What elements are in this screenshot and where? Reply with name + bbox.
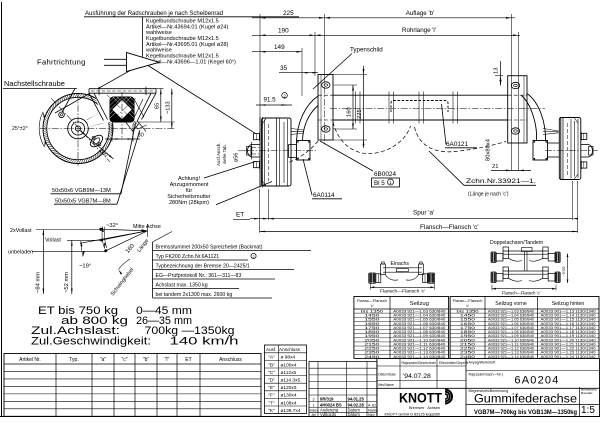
svg-text:225: 225 xyxy=(357,109,363,119)
svg-text:225: 225 xyxy=(283,10,294,17)
svg-text:Artikel Nr.: Artikel Nr. xyxy=(19,357,41,363)
svg-text:190: 190 xyxy=(278,28,289,35)
svg-text:9R/319: 9R/319 xyxy=(320,397,334,402)
svg-text:ø130x4: ø130x4 xyxy=(281,393,297,399)
svg-text:~84 mm: ~84 mm xyxy=(36,272,42,293)
svg-text:Bremsen · Achsen: Bremsen · Achsen xyxy=(409,406,440,410)
svg-text:Fahrtrichtung: Fahrtrichtung xyxy=(37,58,86,67)
svg-text:~133: ~133 xyxy=(165,101,171,114)
svg-text:21: 21 xyxy=(492,164,498,170)
svg-text:1:5: 1:5 xyxy=(581,405,595,416)
svg-text:149: 149 xyxy=(274,44,285,51)
svg-text:VGB7M—700kg bis VGB13M—1350kg: VGB7M—700kg bis VGB13M—1350kg xyxy=(474,409,577,416)
svg-text:KNOTT: KNOTT xyxy=(399,391,443,406)
svg-text:13: 13 xyxy=(494,68,500,74)
svg-text:Ellenőrizte/Geprüft: Ellenőrizte/Geprüft xyxy=(439,361,468,365)
svg-text:Typ FK200 Zchn.Nr.6A1121: Typ FK200 Zchn.Nr.6A1121 xyxy=(156,254,220,260)
svg-text:6A0204: 6A0204 xyxy=(514,375,559,387)
svg-text:"a": "a" xyxy=(100,357,107,363)
svg-text:A.Sz.: A.Sz. xyxy=(368,403,377,407)
svg-text:Vollast: Vollast xyxy=(45,238,61,244)
svg-text:"K": "K" xyxy=(268,408,275,414)
svg-text:"A": "A" xyxy=(268,355,275,361)
svg-text:ø114.3x5: ø114.3x5 xyxy=(281,378,301,384)
svg-text:"F": "F" xyxy=(268,393,275,399)
svg-text:94.01.25: 94.01.25 xyxy=(348,397,365,402)
svg-text:"E": "E" xyxy=(268,385,275,391)
svg-text:Masstab:: Masstab: xyxy=(581,391,593,395)
svg-text:25°±2°: 25°±2° xyxy=(12,126,28,132)
svg-text:ET: ET xyxy=(236,212,244,219)
svg-text:Flansc—Flansch: Flansc—Flansch xyxy=(453,298,483,303)
svg-text:ø112x5: ø112x5 xyxy=(281,370,297,376)
svg-text:ET: ET xyxy=(185,357,191,363)
svg-text:Zchn.Nr.33921—1.: Zchn.Nr.33921—1. xyxy=(466,178,536,185)
svg-text:Anyag/Werkstoff:: Anyag/Werkstoff: xyxy=(469,361,496,365)
svg-text:ø139.7x4: ø139.7x4 xyxy=(281,408,301,414)
svg-text:Seilzug hinten: Seilzug hinten xyxy=(552,301,585,307)
svg-text:unbeladen: unbeladen xyxy=(8,250,33,256)
svg-text:'c': 'c' xyxy=(466,303,470,308)
svg-text:6A0114: 6A0114 xyxy=(313,192,335,199)
svg-text:Einachs: Einachs xyxy=(391,261,410,267)
svg-text:Seilzug vorne: Seilzug vorne xyxy=(495,301,527,307)
svg-text:Rajzszám/Gezeichnet: Rajzszám/Gezeichnet xyxy=(402,361,436,365)
svg-text:6B0024: 6B0024 xyxy=(374,171,396,178)
svg-text:2: 2 xyxy=(312,398,314,402)
svg-text:"C": "C" xyxy=(268,370,275,376)
svg-text:Mitte Achse: Mitte Achse xyxy=(133,224,161,230)
svg-text:ø 98x4: ø 98x4 xyxy=(281,355,296,361)
svg-text:ø100x4: ø100x4 xyxy=(281,362,297,368)
svg-text:50x50x5 VGB7M—8M: 50x50x5 VGB7M—8M xyxy=(55,199,111,205)
svg-text:wahlweise: wahlweise xyxy=(145,47,172,53)
svg-text:"T": "T" xyxy=(268,400,275,406)
svg-text:KNOTT GmbH D 83125 Eggst: KNOTT GmbH D 83125 Eggstätt xyxy=(385,413,441,417)
svg-text:Seilzug: Seilzug xyxy=(410,301,429,307)
svg-text:'94.07.28: '94.07.28 xyxy=(403,373,431,380)
svg-text:160: 160 xyxy=(347,107,353,117)
svg-text:Dátum/Date: Dátum/Date xyxy=(378,373,396,377)
svg-text:wahlweise: wahlweise xyxy=(145,30,172,36)
svg-text:Ausf.Ansch.: Ausf.Ansch. xyxy=(216,143,221,166)
svg-text:ø56: ø56 xyxy=(234,153,240,162)
svg-text:bei tandem 2x1300 max. 2600 kg: bei tandem 2x1300 max. 2600 kg xyxy=(156,292,233,298)
svg-text:Rajzszám/Sach—Nr.): Rajzszám/Sach—Nr.) xyxy=(469,373,503,377)
svg-text:"l": "l" xyxy=(165,357,170,363)
svg-text:~32°: ~32° xyxy=(106,223,118,229)
svg-text:Dátum: Dátum xyxy=(348,412,361,417)
svg-text:Flansch—Flansch 'c': Flansch—Flansch 'c' xyxy=(502,290,541,295)
svg-text:Bl 5: Bl 5 xyxy=(374,180,385,187)
svg-text:1: 1 xyxy=(312,403,314,407)
svg-text:91.5: 91.5 xyxy=(264,97,277,104)
svg-text:~19°: ~19° xyxy=(79,264,91,270)
svg-text:Ausführung der Radschrauben je: Ausführung der Radschrauben je nach Sche… xyxy=(85,11,223,17)
svg-text:Typbezeichnung der Bremse 20—2: Typbezeichnung der Bremse 20—2425/1 xyxy=(156,264,250,270)
svg-text:65: 65 xyxy=(154,103,160,109)
svg-text:80x80x4: 80x80x4 xyxy=(486,138,492,161)
svg-text:ø108x4: ø108x4 xyxy=(281,400,297,406)
svg-text:Index: Index xyxy=(309,409,318,413)
svg-text:Anschluss: Anschluss xyxy=(279,347,301,352)
svg-text:35: 35 xyxy=(280,65,288,72)
svg-text:Vdltozds: Vdltozds xyxy=(320,412,336,417)
svg-text:Flansch—Flansch 'c': Flansch—Flansch 'c' xyxy=(380,289,425,294)
svg-text:Nachstellschraube: Nachstellschraube xyxy=(4,79,65,88)
svg-text:Typenschild: Typenschild xyxy=(350,47,383,54)
svg-text:"B": "B" xyxy=(268,362,275,368)
svg-text:Flansch—Flansch 'c': Flansch—Flansch 'c' xyxy=(420,224,479,231)
svg-text:ø120x5: ø120x5 xyxy=(281,385,297,391)
svg-text:Gummifederachse: Gummifederachse xyxy=(474,392,577,406)
svg-text:Auflage 'b': Auflage 'b' xyxy=(406,10,435,17)
svg-text:Rohrlange 'l': Rohrlange 'l' xyxy=(402,27,436,34)
svg-text:280Nm (28kpm): 280Nm (28kpm) xyxy=(169,200,209,206)
svg-text:'c': 'c' xyxy=(370,303,374,308)
svg-text:"D": "D" xyxy=(268,378,275,384)
svg-text:siehe Tab.: siehe Tab. xyxy=(222,144,227,164)
svg-text:50x50x6 VGB9M—13M: 50x50x6 VGB9M—13M xyxy=(52,188,111,194)
svg-text:~52 mm: ~52 mm xyxy=(64,272,70,293)
svg-text:6A0121: 6A0121 xyxy=(446,141,468,148)
svg-text:~0°/05: ~0°/05 xyxy=(562,266,566,276)
svg-text:Anschluss: Anschluss xyxy=(219,357,242,363)
svg-text:Doppelachsen/Tandem: Doppelachsen/Tandem xyxy=(490,240,543,246)
svg-text:Flansc—Flansch: Flansc—Flansch xyxy=(357,298,387,303)
svg-text:Jel: Jel xyxy=(311,413,316,417)
svg-text:Ausf.: Ausf. xyxy=(266,347,276,352)
svg-text:EG—Prüfprotokoll Nr.: 361—311—: EG—Prüfprotokoll Nr.: 361—311—83 xyxy=(156,273,242,279)
svg-text:Zul.Geschwindigkeit:: Zul.Geschwindigkeit: xyxy=(31,336,151,348)
svg-text:Bremsstummel 200x50 Spreizhebe: Bremsstummel 200x50 Spreizhebel (Backmat… xyxy=(156,245,263,251)
svg-text:2xVollast: 2xVollast xyxy=(10,228,32,234)
svg-text:Typ.: Typ. xyxy=(69,357,78,363)
svg-text:Achslast max. 1350 kg: Achslast max. 1350 kg xyxy=(156,283,208,289)
svg-text:Spur 'a': Spur 'a' xyxy=(413,210,434,217)
svg-text:"c": "c" xyxy=(121,357,127,363)
svg-text:Név/Name: Név/Name xyxy=(378,383,394,387)
svg-text:Név: Név xyxy=(368,413,375,417)
svg-text:(Länge je nach 'c'): (Länge je nach 'c') xyxy=(468,192,509,198)
svg-text:"b": "b" xyxy=(143,357,150,363)
svg-text:140 km/h: 140 km/h xyxy=(170,336,239,348)
